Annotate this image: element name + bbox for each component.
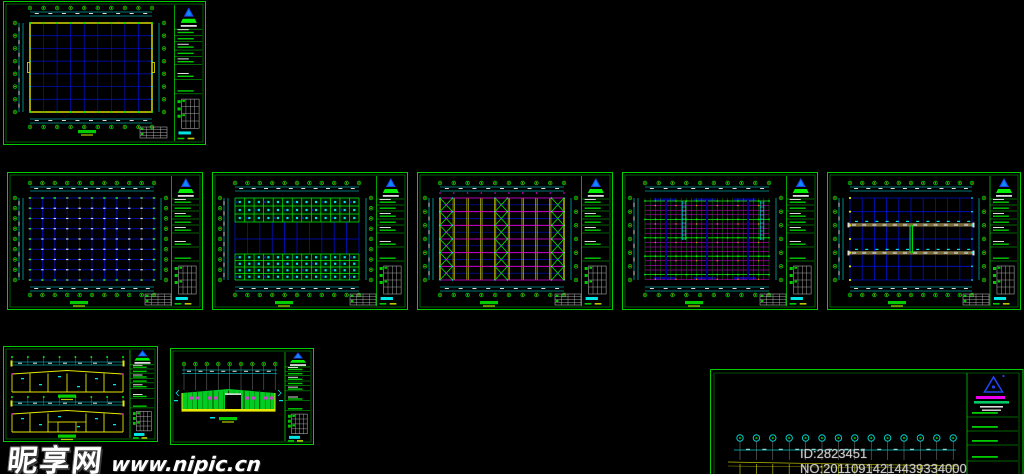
purlin-layout-plan-svg <box>622 172 818 310</box>
drawing-portal-frame-elevations <box>3 346 158 442</box>
drawing-foundation-plan <box>3 1 206 145</box>
bracing-plan-svg <box>417 172 613 310</box>
drawing-roof-framing-bands-plan <box>212 172 408 310</box>
portal-frame-elevations-svg <box>3 346 158 442</box>
drawing-tie-beam-plan <box>827 172 1021 310</box>
stock-id-watermark: ID:2823451 NO:20110914214439334000 <box>800 446 1024 474</box>
drawing-bracing-plan <box>417 172 613 310</box>
tie-beam-plan-svg <box>827 172 1021 310</box>
foundation-plan-svg <box>3 1 206 145</box>
column-grid-plan-svg <box>7 172 203 310</box>
site-url-watermark: www.nipic.cn <box>110 452 262 474</box>
drawing-column-grid-plan <box>7 172 203 310</box>
cad-drawings-canvas: 昵享网 www.nipic.cn ID:2823451 NO:201109142… <box>0 0 1024 474</box>
nipic-watermark: 昵享网 www.nipic.cn <box>6 436 264 474</box>
drawing-purlin-layout-plan <box>622 172 818 310</box>
roof-framing-bands-plan-svg <box>212 172 408 310</box>
wall-elevation-svg <box>170 348 314 445</box>
site-name-watermark: 昵享网 <box>6 436 107 474</box>
drawing-wall-elevation <box>170 348 314 445</box>
